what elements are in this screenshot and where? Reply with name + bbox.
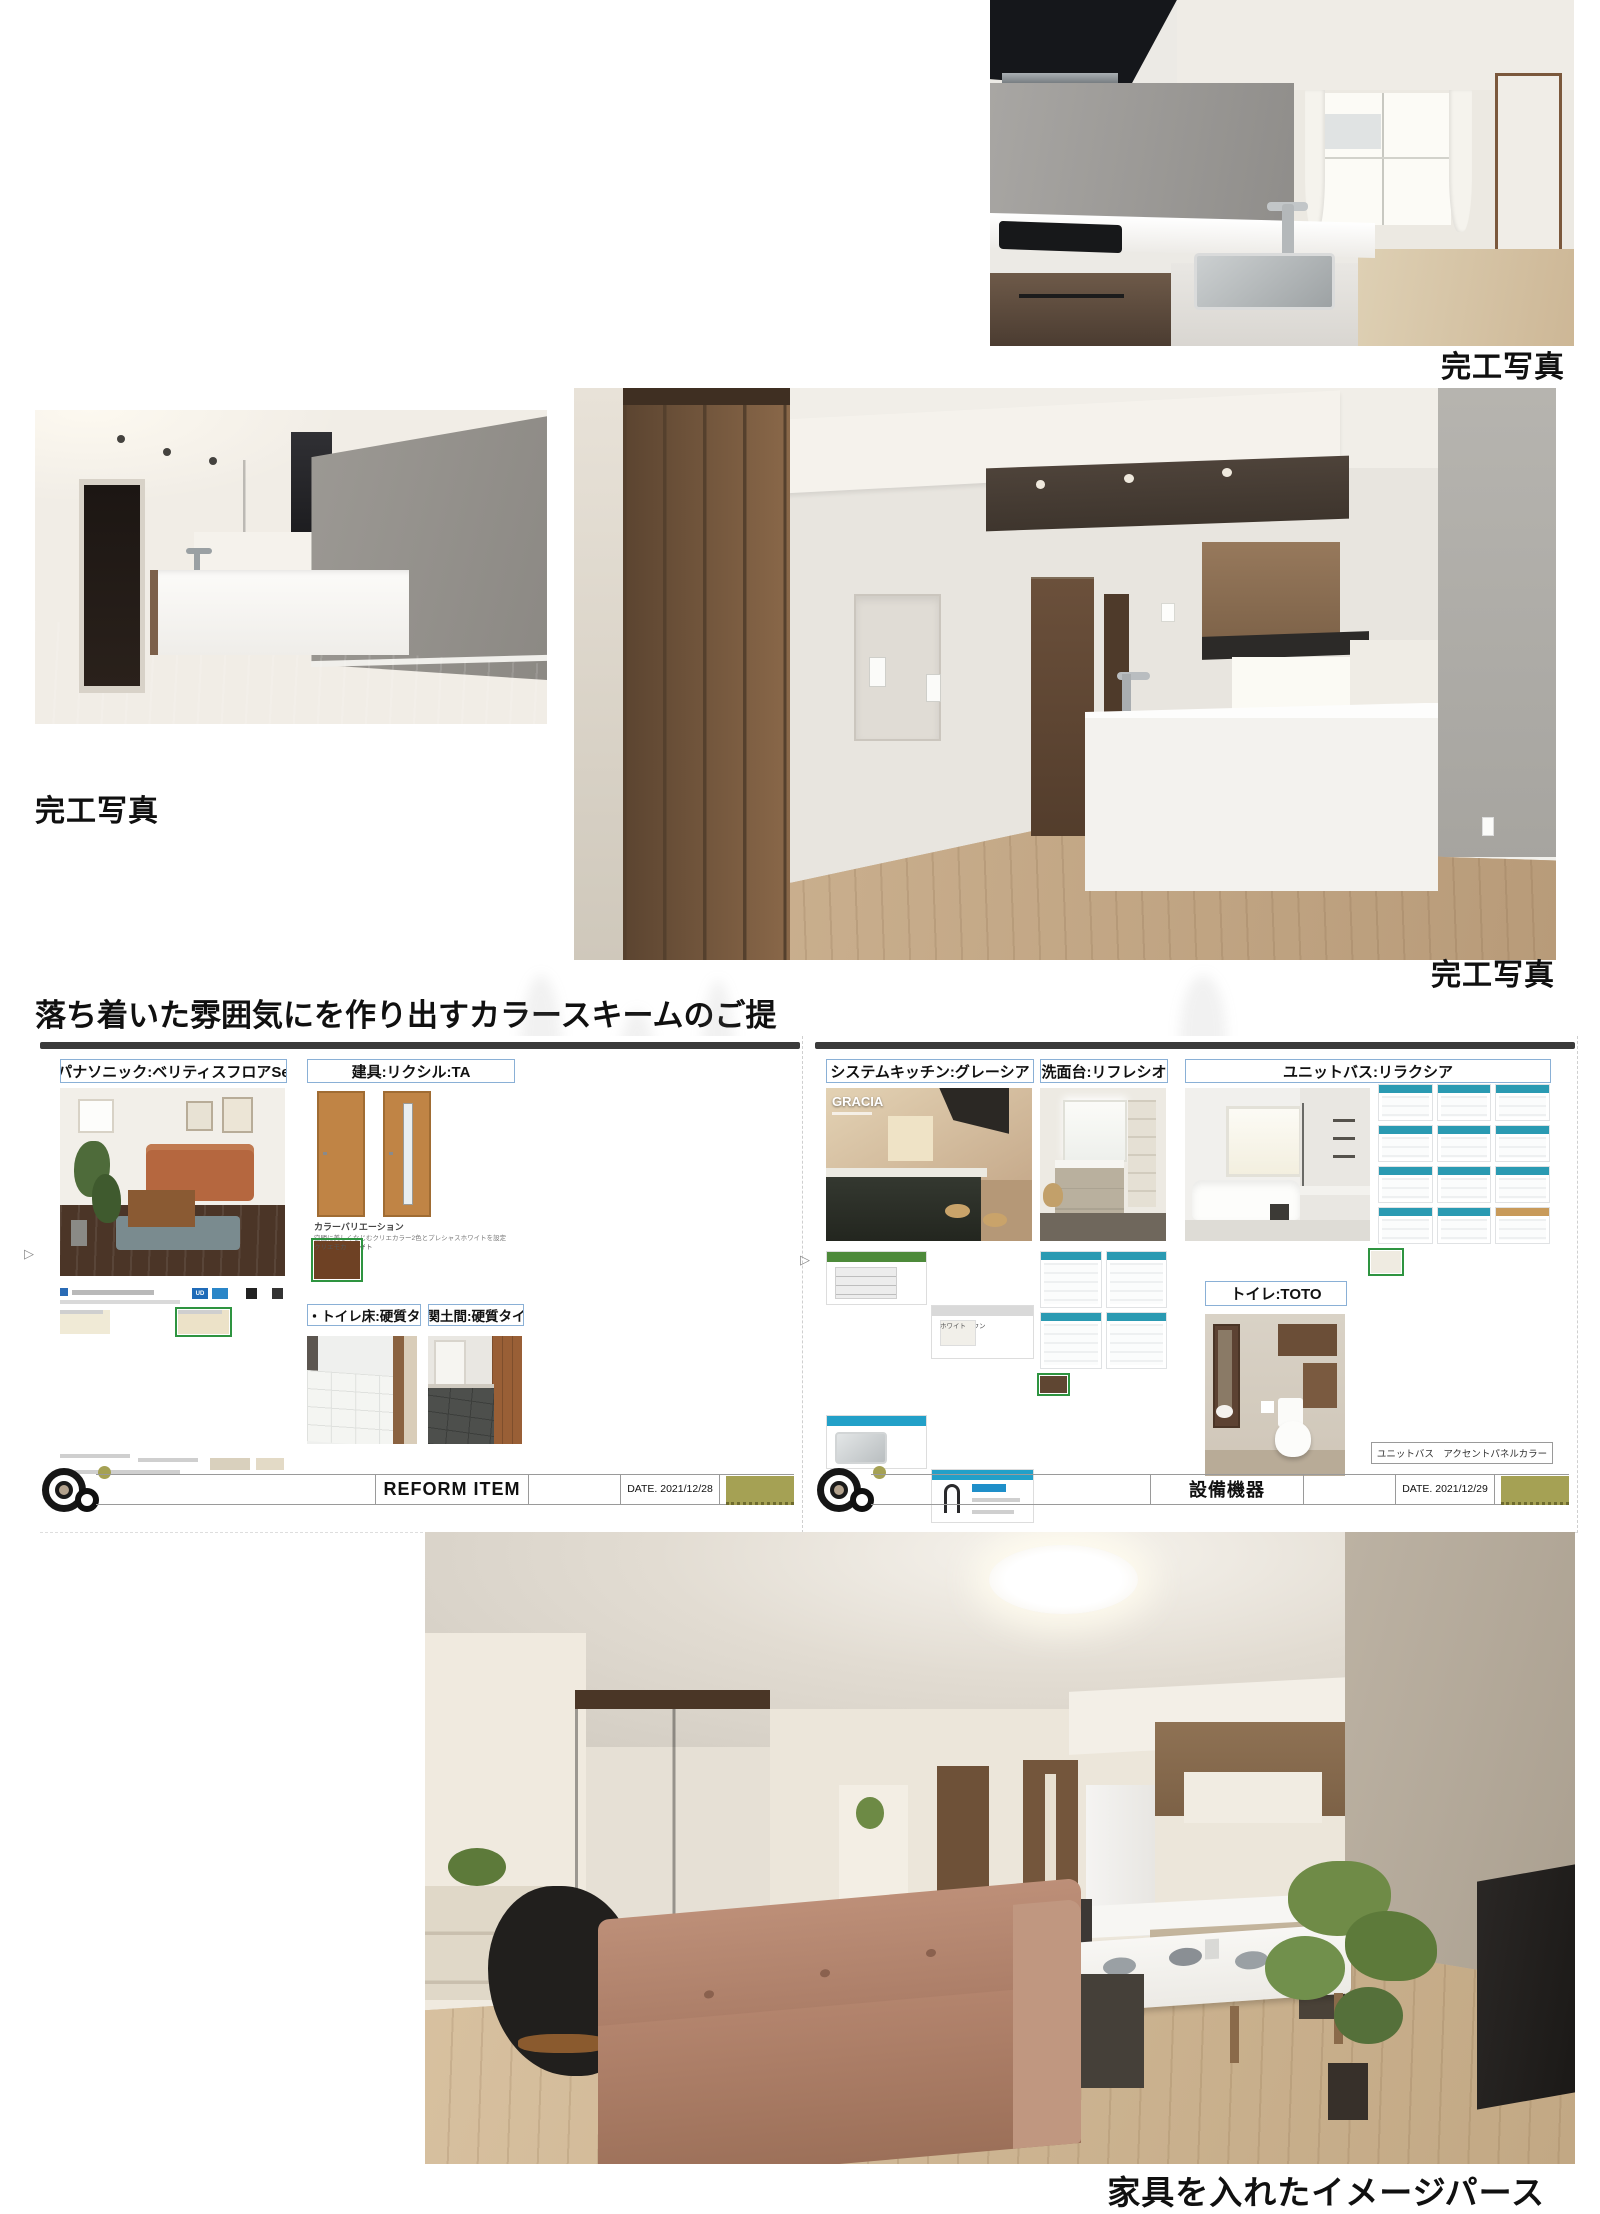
upper-cabinets bbox=[194, 460, 302, 532]
badge-icon bbox=[212, 1288, 228, 1299]
door-track bbox=[575, 1690, 771, 1709]
side-shelf bbox=[1303, 1363, 1337, 1408]
swatch-caption-bar bbox=[60, 1310, 103, 1314]
photo-kitchen-gracia: GRACIA bbox=[826, 1088, 1032, 1241]
glassware bbox=[1204, 1938, 1218, 1960]
page: 完工写真 完工写真 bbox=[0, 0, 1600, 2214]
label-doors: 建具:リクシル:TA bbox=[307, 1059, 515, 1083]
bath-spec-grid bbox=[1378, 1084, 1550, 1244]
table-leg bbox=[1230, 2006, 1239, 2063]
panel-body: ダークブラウンホワイト bbox=[932, 1316, 1033, 1358]
floor bbox=[981, 1180, 1033, 1241]
shower-bar bbox=[1302, 1103, 1305, 1187]
faucet bbox=[1122, 674, 1131, 711]
logo-core bbox=[830, 1481, 848, 1499]
spec-cell bbox=[1437, 1084, 1492, 1121]
sheet-date: DATE. 2021/12/29 bbox=[1395, 1474, 1495, 1504]
furniture-thumb bbox=[256, 1458, 284, 1470]
page-arrow-icon: ▷ bbox=[24, 1246, 34, 1262]
gas-stove bbox=[999, 221, 1122, 253]
swatch-caption-bar bbox=[178, 1310, 222, 1314]
panel-header bbox=[932, 1306, 1033, 1316]
wall-art bbox=[222, 1097, 253, 1133]
plant-leaves bbox=[1334, 1987, 1403, 2044]
leather-sofa bbox=[598, 1877, 1081, 2164]
accent-panel-label: ユニットバス アクセントパネルカラー bbox=[1371, 1442, 1553, 1464]
faucet bbox=[194, 548, 200, 570]
basket bbox=[1043, 1183, 1063, 1207]
sheet-title: REFORM ITEM bbox=[375, 1474, 529, 1504]
door-track bbox=[623, 388, 790, 405]
logo-olive-dot bbox=[873, 1466, 886, 1479]
lounge-chair-base bbox=[518, 2034, 608, 2053]
photo-washroom-tile bbox=[307, 1336, 417, 1444]
tv-screen bbox=[1477, 1865, 1575, 2110]
door-handle bbox=[323, 1152, 327, 1156]
wall-niche bbox=[854, 594, 941, 741]
spec-cell-body bbox=[1382, 1178, 1429, 1199]
spec-cell bbox=[1378, 1207, 1433, 1244]
kitchen-counter bbox=[1085, 703, 1439, 892]
wood-door-frame bbox=[393, 1336, 404, 1444]
range-hood-edge bbox=[1202, 631, 1369, 660]
spec-cell bbox=[1378, 1084, 1433, 1121]
logo-ring-small bbox=[75, 1488, 99, 1512]
caption-render: 家具を入れたイメージパース bbox=[1107, 2166, 1545, 2214]
sofa-tuft bbox=[704, 1989, 714, 1998]
photo-entrance-tile bbox=[428, 1336, 522, 1444]
text-bar bbox=[60, 1454, 130, 1458]
spec-cell-body bbox=[1382, 1096, 1429, 1117]
kitchen-island bbox=[158, 570, 409, 655]
company-logo bbox=[42, 1462, 122, 1520]
caption-finished-photo-large: 完工写真 bbox=[1431, 950, 1555, 994]
faucet bbox=[1282, 204, 1294, 252]
page-heading: 落ち着いた雰囲気にを作り出すカラースキームのご提 bbox=[35, 990, 777, 1035]
spec-cell-body bbox=[1499, 1178, 1546, 1199]
spec-cell bbox=[1040, 1251, 1102, 1308]
spec-cell-body bbox=[1499, 1219, 1546, 1240]
downlight bbox=[1124, 474, 1134, 483]
sink bbox=[1194, 253, 1334, 311]
step-edge bbox=[428, 1384, 494, 1388]
sofa-arm bbox=[1013, 1899, 1081, 2149]
spec-cell-header bbox=[1379, 1167, 1432, 1175]
dining-chair bbox=[1081, 1974, 1144, 2088]
spec-cell-header bbox=[1438, 1208, 1491, 1216]
spec-cell bbox=[1040, 1312, 1102, 1369]
drawer-unit-illustration bbox=[835, 1267, 897, 1299]
counter-ledge bbox=[1300, 1186, 1370, 1195]
window-mullion bbox=[1317, 157, 1451, 160]
door-sample-plain bbox=[317, 1091, 365, 1217]
mirror bbox=[1063, 1100, 1127, 1162]
spec-cell bbox=[1378, 1166, 1433, 1203]
spec-cell-header bbox=[1496, 1208, 1549, 1216]
label-bath: ユニットバス:リラクシア bbox=[1185, 1059, 1551, 1083]
doorway bbox=[1495, 73, 1562, 273]
outlet bbox=[1482, 817, 1494, 836]
downlight bbox=[1036, 480, 1046, 489]
catalog-title-bar bbox=[72, 1290, 154, 1295]
photo-flooring-living bbox=[60, 1088, 285, 1276]
qr-icon bbox=[272, 1288, 283, 1299]
curtain bbox=[1305, 90, 1325, 232]
label-toilet: トイレ:TOTO bbox=[1205, 1281, 1347, 1306]
panel-header bbox=[827, 1416, 926, 1426]
spec-cell-body bbox=[1382, 1137, 1429, 1158]
company-logo bbox=[817, 1462, 897, 1520]
spec-cell-header bbox=[1107, 1313, 1167, 1321]
spec-cell bbox=[1495, 1084, 1550, 1121]
furniture-thumb bbox=[210, 1458, 250, 1470]
dark-doorway bbox=[84, 485, 140, 686]
spec-cell-header bbox=[1041, 1313, 1101, 1321]
sheet-equipment: システムキッチン:グレーシア 洗面台:リフレシオ ユニットバス:リラクシア GR… bbox=[815, 1036, 1578, 1533]
spec-cell bbox=[1495, 1207, 1550, 1244]
light-switch bbox=[1161, 603, 1175, 622]
cabinet-handle bbox=[1019, 294, 1124, 298]
curtain bbox=[1449, 90, 1472, 232]
spec-cell-header bbox=[1496, 1085, 1549, 1093]
spec-cell bbox=[1106, 1312, 1168, 1369]
backsplash-panel bbox=[990, 83, 1294, 228]
spec-cell-header bbox=[1379, 1208, 1432, 1216]
spec-cell-header bbox=[1496, 1126, 1549, 1134]
sheet-top-bar bbox=[40, 1042, 800, 1049]
spec-cell bbox=[1437, 1125, 1492, 1162]
kitchen-brand-text: GRACIA bbox=[832, 1094, 883, 1109]
plant-pot bbox=[1328, 2063, 1368, 2120]
counter bbox=[1055, 1160, 1124, 1168]
base-cabinets bbox=[990, 273, 1171, 346]
paper-holder bbox=[1261, 1401, 1274, 1412]
plate bbox=[1169, 1947, 1202, 1967]
spec-cell bbox=[1437, 1207, 1492, 1244]
countertop bbox=[826, 1168, 987, 1177]
sheet-footer: 設備機器 DATE. 2021/12/29 bbox=[815, 1474, 1571, 1518]
sheet-reform-item: パナソニック:ベリティスフロアSe 建具:リクシル:TA カラーバリエーション … bbox=[40, 1036, 803, 1533]
spec-cell bbox=[1495, 1125, 1550, 1162]
page-arrow-icon: ▷ bbox=[800, 1252, 810, 1268]
window bbox=[78, 1099, 114, 1133]
swatch-name: クリエモカ bbox=[314, 1241, 347, 1251]
door-sample-glass bbox=[383, 1091, 431, 1217]
swatch-name: ホワイト bbox=[940, 1320, 966, 1330]
open-room-glimpse bbox=[574, 388, 623, 960]
qr-icon bbox=[246, 1288, 257, 1299]
window bbox=[1317, 93, 1451, 224]
upper-cabinet bbox=[1278, 1324, 1337, 1356]
window-outside bbox=[1325, 114, 1381, 148]
spec-cell bbox=[1495, 1166, 1550, 1203]
logo-olive-dot bbox=[98, 1466, 111, 1479]
shelf bbox=[1333, 1155, 1355, 1158]
sheet-footer: REFORM ITEM DATE. 2021/12/28 bbox=[40, 1474, 796, 1518]
bath-wall-panel bbox=[1300, 1088, 1370, 1241]
spec-cell-header bbox=[1496, 1167, 1549, 1175]
bath-stool bbox=[1270, 1204, 1289, 1219]
wood-sliding-doors bbox=[623, 388, 790, 960]
spec-cell-body bbox=[1441, 1137, 1488, 1158]
spec-cell bbox=[1378, 1125, 1433, 1162]
door-handle bbox=[389, 1152, 393, 1156]
wood-floor bbox=[1358, 249, 1574, 346]
sheet-title: 設備機器 bbox=[1150, 1474, 1304, 1504]
spec-cell-body bbox=[1044, 1263, 1098, 1304]
spec-cell-header bbox=[1438, 1085, 1491, 1093]
label-washroom-floor: 洗面・トイレ床:硬質タイル bbox=[307, 1304, 421, 1326]
sheet-top-bar bbox=[815, 1042, 1575, 1049]
spec-cell-body bbox=[1110, 1263, 1164, 1304]
kitchen-spec-panels: ダークブラウンホワイト bbox=[826, 1251, 1032, 1476]
shelf bbox=[1333, 1119, 1355, 1122]
sheet-date: DATE. 2021/12/28 bbox=[620, 1474, 720, 1504]
intercom-panel bbox=[926, 674, 942, 702]
swatch-chip bbox=[1371, 1251, 1401, 1273]
kitchen-ceiling-recess bbox=[986, 456, 1349, 532]
spec-cell-header bbox=[1438, 1126, 1491, 1134]
wood-wall bbox=[492, 1336, 522, 1444]
toilet-bowl bbox=[1275, 1421, 1311, 1457]
side-shelf bbox=[1128, 1100, 1156, 1207]
photo-furnished-render bbox=[425, 1532, 1575, 2164]
vanity-spec-grid bbox=[1040, 1251, 1167, 1369]
spec-cell-body bbox=[1441, 1096, 1488, 1117]
vanity-cabinet bbox=[1055, 1168, 1124, 1214]
spec-cell-body bbox=[1044, 1324, 1098, 1365]
hall-floor bbox=[404, 1336, 417, 1444]
plant bbox=[92, 1174, 121, 1223]
photo-finished-ldk bbox=[35, 410, 547, 724]
small-sink bbox=[1216, 1405, 1233, 1418]
label-entrance-floor: 玄関土間:硬質タイル bbox=[428, 1304, 524, 1326]
photo-vanity bbox=[1040, 1088, 1166, 1241]
photo-bathroom bbox=[1185, 1088, 1370, 1241]
spec-cell-body bbox=[1110, 1324, 1164, 1365]
logo-core bbox=[55, 1481, 73, 1499]
text-bar bbox=[138, 1458, 198, 1462]
brand-subtitle-bar bbox=[832, 1112, 872, 1115]
spec-cell-body bbox=[1441, 1178, 1488, 1199]
sofa-tuft bbox=[820, 1968, 830, 1977]
spec-cell bbox=[1106, 1251, 1168, 1308]
plant-leaves bbox=[1265, 1936, 1346, 1999]
label-flooring: パナソニック:ベリティスフロアSe bbox=[60, 1059, 287, 1083]
coffee-table bbox=[128, 1190, 196, 1228]
spec-cell-header bbox=[1107, 1252, 1167, 1260]
small-plant bbox=[448, 1848, 506, 1886]
plate bbox=[1235, 1950, 1268, 1970]
flower-vase bbox=[856, 1797, 884, 1829]
floor bbox=[1205, 1450, 1345, 1476]
swatch-chip bbox=[1040, 1376, 1067, 1393]
panel-header bbox=[827, 1252, 926, 1262]
logo-ring-small bbox=[850, 1488, 874, 1512]
ud-badge: UD bbox=[192, 1288, 208, 1299]
plant-pot bbox=[71, 1220, 87, 1246]
catalog-logo-icon bbox=[60, 1288, 68, 1296]
flooring-catalog: UD bbox=[60, 1288, 288, 1450]
ceiling-light bbox=[989, 1545, 1139, 1615]
wall-art bbox=[186, 1101, 213, 1131]
window bbox=[888, 1116, 933, 1162]
white-tile-floor bbox=[307, 1370, 393, 1444]
mirror-face bbox=[1218, 1330, 1232, 1414]
kitchen-upper-cabinet bbox=[1202, 542, 1339, 639]
photo-finished-kitchen bbox=[990, 0, 1574, 346]
spec-cell-body bbox=[1499, 1096, 1546, 1117]
photo-finished-large bbox=[574, 388, 1556, 960]
open-shelf bbox=[1184, 1772, 1322, 1823]
spec-cell-header bbox=[1438, 1167, 1491, 1175]
catalog-subtitle-bar bbox=[60, 1300, 180, 1304]
shelf bbox=[1333, 1137, 1355, 1140]
window-mullion bbox=[1382, 93, 1385, 224]
dark-tile-floor bbox=[428, 1388, 494, 1444]
footer-olive-block bbox=[1501, 1476, 1569, 1505]
spec-cell-header bbox=[1041, 1252, 1101, 1260]
door-glass-slit bbox=[403, 1103, 412, 1205]
caption-finished-photo-top: 完工写真 bbox=[1441, 342, 1565, 386]
footer-rule bbox=[96, 1504, 794, 1505]
spec-cell-body bbox=[1441, 1219, 1488, 1240]
panel-body bbox=[827, 1262, 926, 1304]
sink-illustration bbox=[835, 1432, 887, 1464]
footer-olive-block bbox=[726, 1476, 794, 1505]
photo-toilet bbox=[1205, 1314, 1345, 1476]
spec-cell-body bbox=[1382, 1219, 1429, 1240]
spec-cell-header bbox=[1379, 1085, 1432, 1093]
spec-cell-body bbox=[1499, 1137, 1546, 1158]
caption-finished-photo-left: 完工写真 bbox=[35, 786, 159, 830]
label-vanity: 洗面台:リフレシオ bbox=[1040, 1059, 1168, 1083]
footer-rule bbox=[871, 1504, 1569, 1505]
spec-cell-header bbox=[1379, 1126, 1432, 1134]
spec-cell bbox=[1437, 1166, 1492, 1203]
intercom-panel bbox=[869, 657, 887, 688]
label-kitchen: システムキッチン:グレーシア bbox=[826, 1059, 1034, 1083]
bath-window bbox=[1226, 1106, 1302, 1176]
range-hood bbox=[939, 1088, 1009, 1134]
bath-floor bbox=[1185, 1220, 1370, 1241]
downlight bbox=[163, 448, 171, 456]
dark-floor bbox=[1040, 1213, 1166, 1241]
